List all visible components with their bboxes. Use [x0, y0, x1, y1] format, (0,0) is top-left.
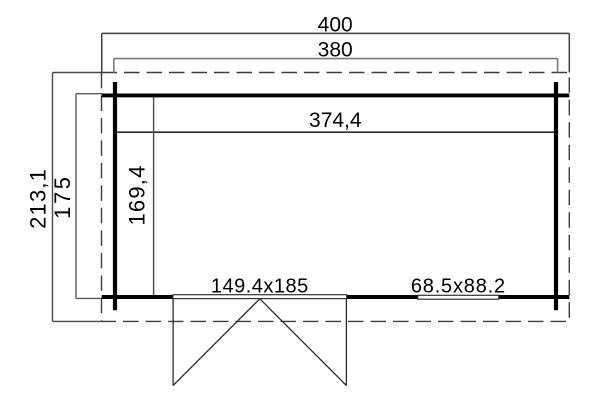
svg-text:400: 400	[318, 14, 353, 37]
svg-text:149.4x185: 149.4x185	[211, 275, 309, 297]
svg-text:68.5x88.2: 68.5x88.2	[411, 276, 506, 298]
svg-text:169,4: 169,4	[125, 164, 150, 225]
svg-text:380: 380	[318, 38, 353, 61]
svg-text:374,4: 374,4	[309, 109, 362, 132]
svg-text:213,1: 213,1	[26, 168, 51, 229]
svg-text:175: 175	[50, 174, 75, 219]
